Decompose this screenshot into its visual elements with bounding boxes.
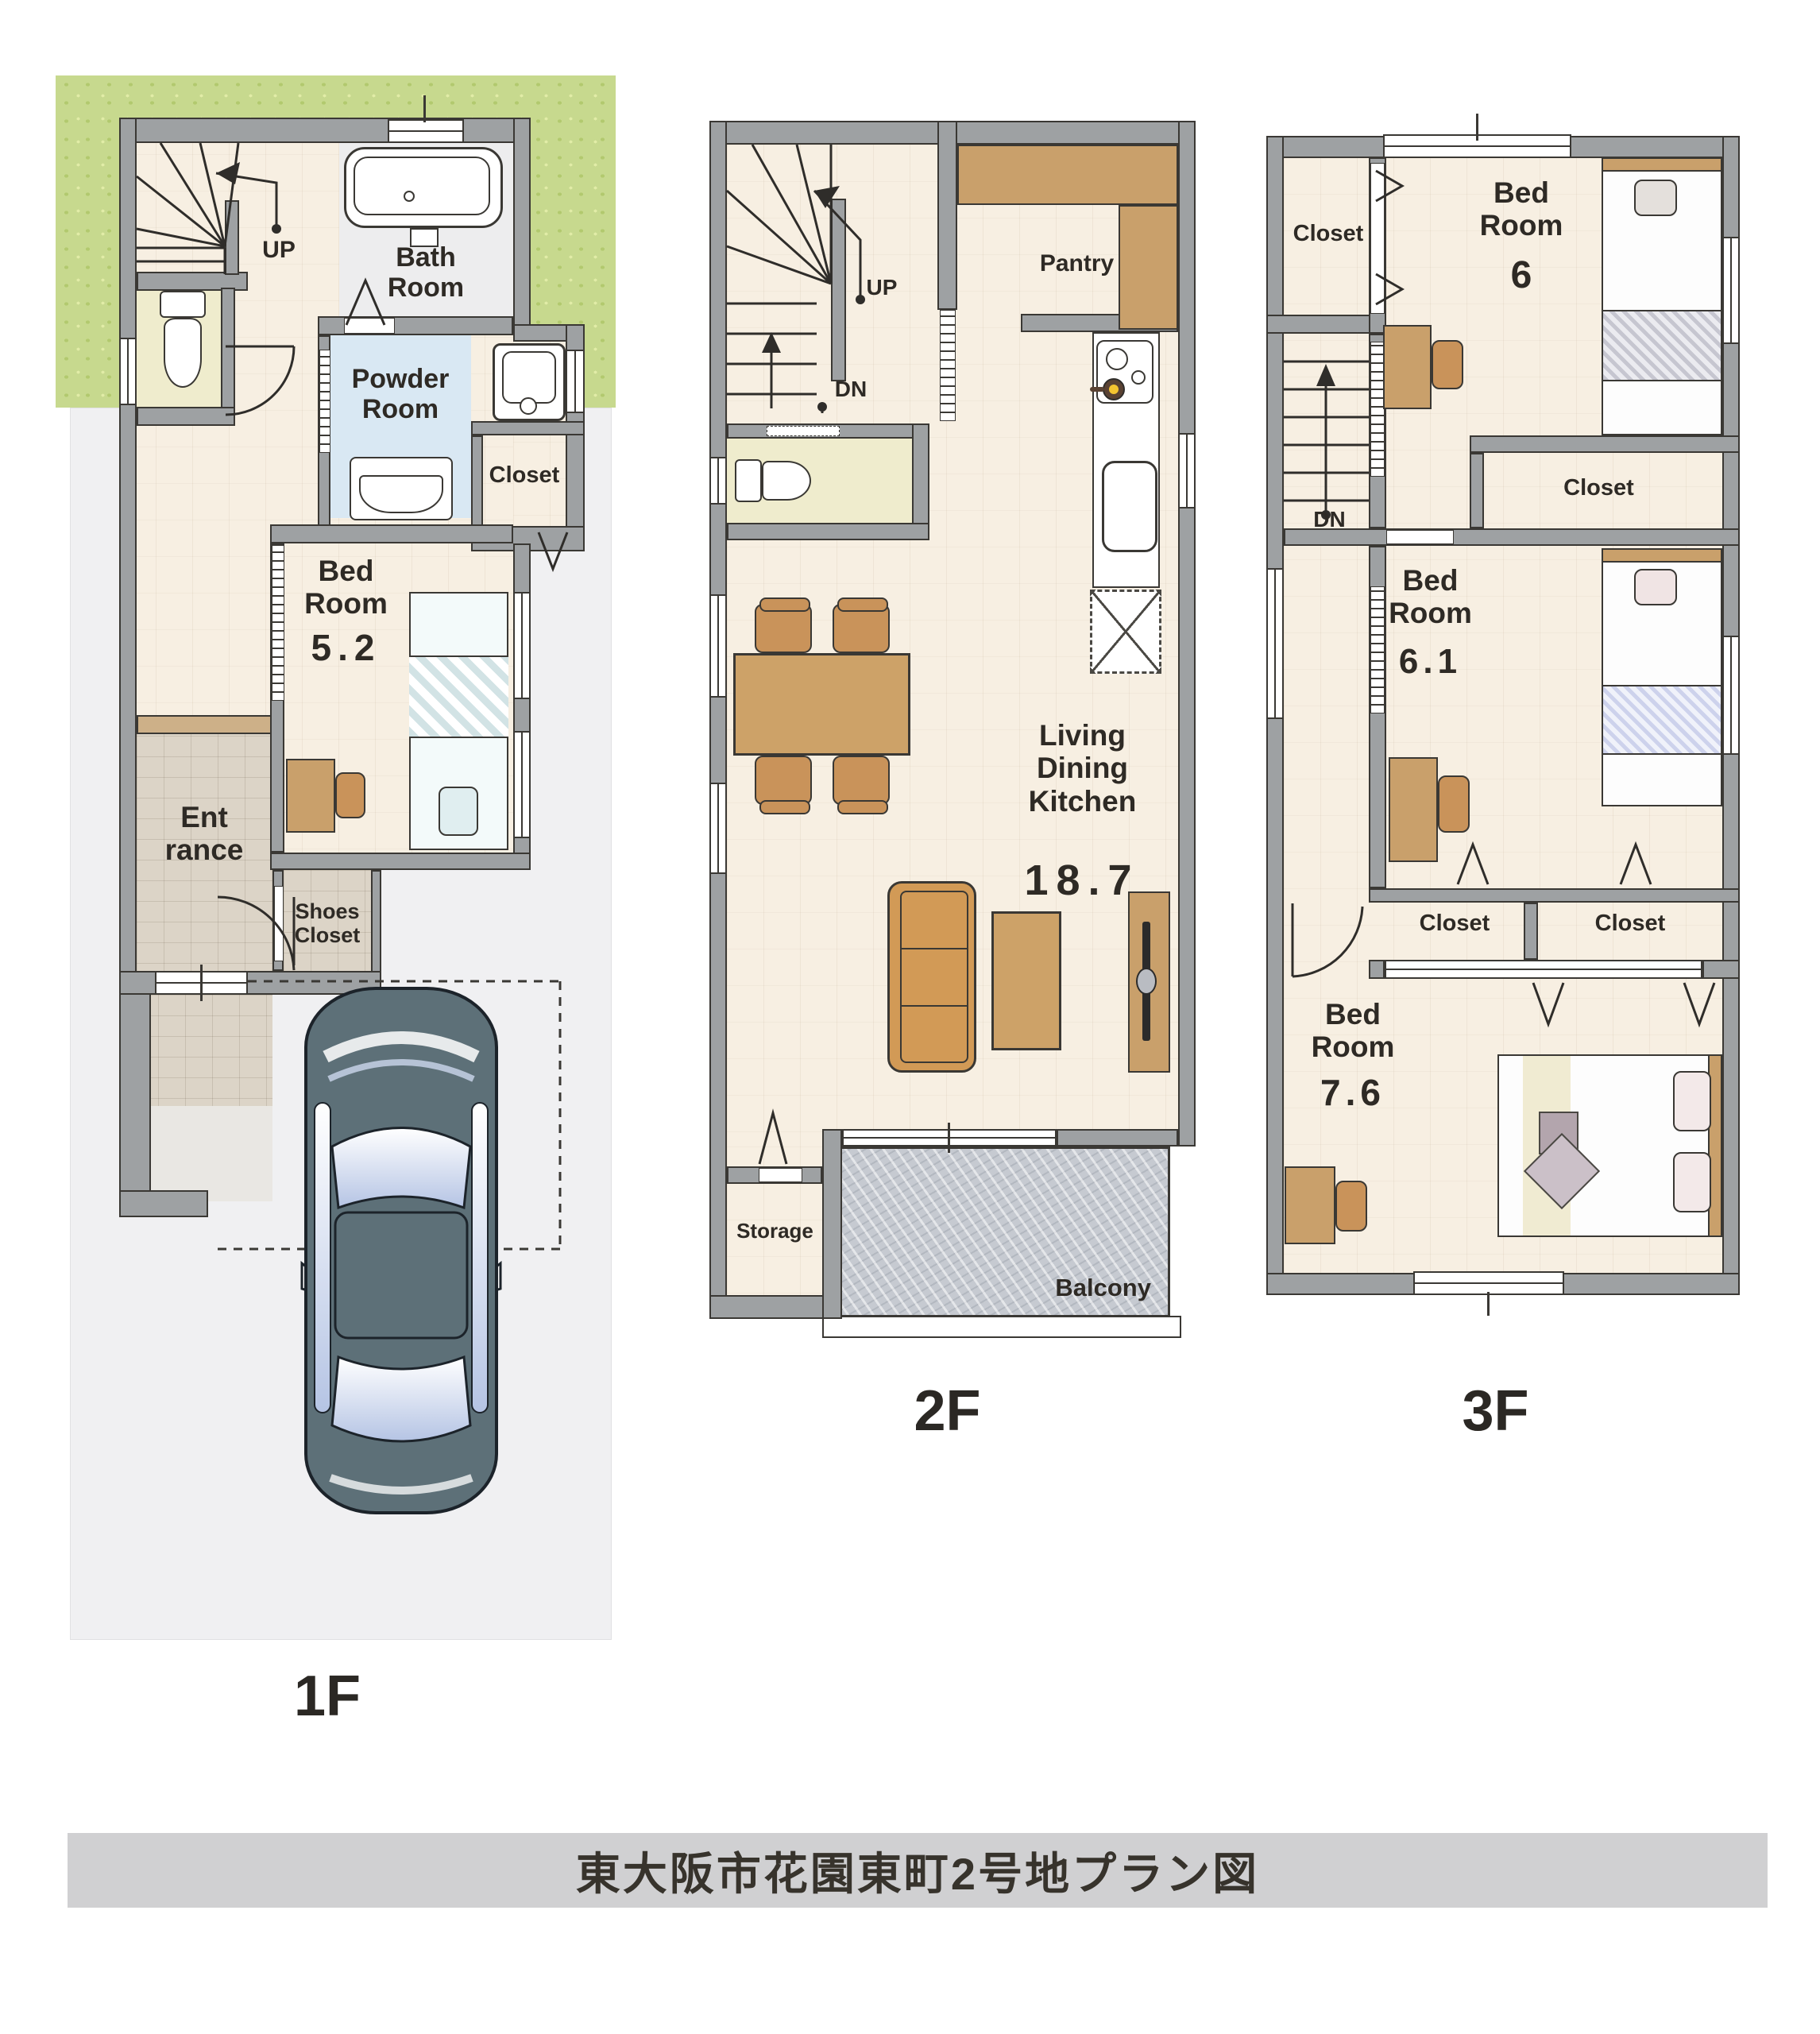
window	[1722, 237, 1740, 344]
room-label-closet-1f: Closet	[477, 462, 572, 488]
wall	[513, 118, 531, 340]
room-size-bedroom-1f: 5.2	[292, 628, 400, 669]
desk-icon	[1389, 757, 1438, 862]
room-label-ldk: Living Dining Kitchen	[1021, 719, 1144, 818]
floor-label-3f: 3F	[1454, 1379, 1537, 1444]
door-mark-closet-top	[1372, 167, 1407, 205]
bed6-pillow	[1634, 180, 1677, 216]
bathtub-inner	[354, 157, 490, 215]
kitchen-sink-icon	[1102, 461, 1157, 552]
bed76-pillow	[1673, 1071, 1711, 1131]
chair-icon	[1335, 1181, 1367, 1232]
wall	[1178, 121, 1196, 1147]
wall	[1702, 960, 1740, 979]
window	[388, 119, 464, 143]
powder-sink-basin	[359, 475, 443, 513]
bed6-blanket-hatch	[1603, 310, 1721, 381]
bed6-headboard	[1602, 157, 1722, 172]
chair-back	[759, 597, 810, 612]
room-label-bedroom61: Bed Room	[1381, 564, 1480, 630]
window-tick	[1487, 1292, 1490, 1316]
front-door-tick	[200, 965, 203, 1001]
window	[513, 731, 531, 838]
wall	[1369, 888, 1740, 903]
window	[119, 338, 137, 405]
door-gap-hall-ldk	[940, 310, 956, 421]
room-label-entrance: Ent rance	[153, 801, 256, 867]
chair-icon	[833, 756, 890, 805]
door-gap-toilet2	[767, 426, 840, 436]
wall	[1470, 435, 1740, 453]
window	[709, 783, 727, 874]
window	[1722, 636, 1740, 755]
sofa-cushion-line	[902, 1005, 967, 1007]
room-label-closet-bottom-left: Closet	[1395, 911, 1514, 936]
toilet-icon-bowl	[164, 318, 202, 388]
wall	[1470, 453, 1484, 528]
room-label-bath: Bath Room	[362, 242, 489, 303]
balcony-window-tick	[948, 1123, 950, 1153]
room-label-bedroom-1f: Bed Room	[292, 555, 400, 621]
room-label-closet-top: Closet	[1281, 221, 1376, 246]
room-size-ldk: 18.7	[1014, 857, 1150, 904]
desk-icon	[1383, 325, 1432, 409]
room-label-shoes-closet: Shoes Closet	[284, 899, 371, 947]
pantry-counter-top	[957, 145, 1178, 205]
toilet2-icon-bowl	[762, 461, 811, 501]
entrance-step-strip	[137, 715, 272, 734]
closet-row-sliding-door	[1385, 960, 1702, 979]
desk-icon	[286, 759, 335, 833]
door-mark-closet61	[1454, 841, 1492, 888]
bathtub-drain	[404, 191, 415, 202]
sofa-cushion-line	[902, 948, 967, 949]
wall	[270, 524, 513, 543]
floor-label-1f: 1F	[272, 1665, 383, 1729]
wall	[822, 1129, 842, 1319]
door-gap-storage	[759, 1168, 802, 1182]
chair-back	[837, 597, 888, 612]
door-gap-powder	[319, 350, 330, 453]
sofa-seat	[900, 891, 968, 1063]
washer-drain	[520, 397, 537, 415]
wall	[270, 853, 531, 870]
room-label-powder: Powder Room	[337, 364, 464, 424]
stove-burner-small	[1131, 370, 1146, 385]
room-label-pantry: Pantry	[1023, 250, 1130, 277]
stairs-dn-label: DN	[825, 377, 877, 404]
room-label-bedroom6: Bed Room	[1466, 176, 1577, 242]
chair-icon	[1432, 340, 1463, 389]
wall	[119, 118, 531, 143]
stairs-dn-label: DN	[1300, 507, 1359, 532]
coffee-table-icon	[991, 911, 1061, 1050]
door-gap-hall	[1386, 530, 1454, 544]
wall	[727, 523, 929, 540]
floor-label-2f: 2F	[906, 1379, 989, 1444]
window	[709, 457, 727, 505]
wall	[471, 421, 585, 435]
wall	[709, 121, 727, 1319]
chair-icon	[335, 772, 365, 818]
door-mark-closet76	[1680, 979, 1718, 1028]
room-label-closet-mid: Closet	[1549, 475, 1648, 501]
toilet-icon-tank	[160, 291, 206, 318]
window	[513, 592, 531, 699]
toilet2-icon-tank	[735, 459, 762, 502]
wall	[1057, 1129, 1178, 1147]
window-tick	[1476, 114, 1478, 141]
bed61-blanket-hatch	[1603, 685, 1721, 755]
room-label-storage: Storage	[725, 1220, 825, 1243]
wall	[937, 121, 957, 310]
room-label-bedroom76: Bed Room	[1301, 998, 1405, 1064]
door-arc-bedroom76	[1286, 900, 1366, 980]
bed76-pillow	[1673, 1152, 1711, 1212]
wall	[119, 118, 137, 995]
door-mark-closet1f	[534, 528, 572, 574]
door-mark-closet61	[1617, 841, 1655, 888]
desk-icon	[1285, 1166, 1335, 1244]
room-size-bedroom61: 6.1	[1381, 642, 1480, 681]
room-size-bedroom76: 7.6	[1301, 1073, 1405, 1114]
wall-garage-l	[119, 993, 151, 1217]
balcony-railing	[822, 1316, 1181, 1338]
stove-burner-large	[1106, 348, 1128, 370]
plan-title: 東大阪市花園東町2号地プラン図	[576, 1839, 1259, 1903]
bed-blanket-hatch	[409, 655, 508, 738]
floor-plan-sheet: UP Bath Room Powder Room Closet Bed Room…	[0, 0, 1820, 2034]
bed61-headboard	[1602, 548, 1722, 563]
stairs-up-label: UP	[856, 275, 907, 302]
door-arc-toilet	[222, 342, 298, 417]
door-mark-closet76	[1529, 979, 1567, 1028]
window-tick	[423, 95, 426, 122]
stairs-up-label: UP	[251, 237, 307, 265]
washer-pan-inner	[502, 351, 556, 404]
wall	[1524, 903, 1538, 960]
wall	[1369, 960, 1385, 979]
window	[566, 350, 585, 413]
car-icon	[284, 984, 518, 1518]
room-size-bedroom6: 6	[1466, 254, 1577, 297]
chair-icon	[1438, 775, 1470, 833]
room-label-balcony: Balcony	[993, 1274, 1156, 1302]
door-mark-closet-top	[1372, 270, 1407, 308]
stairs-icon-floor3	[1284, 334, 1369, 528]
bed61-pillow	[1634, 569, 1677, 605]
door-gap-bedroom	[272, 545, 284, 701]
window	[1266, 568, 1284, 719]
wall-garage-l	[119, 1190, 208, 1217]
tv-lens	[1136, 968, 1157, 995]
window	[709, 594, 727, 698]
frying-pan-handle	[1090, 387, 1104, 392]
dining-table-icon	[733, 653, 910, 756]
title-bar: 東大阪市花園東町2号地プラン図	[68, 1833, 1768, 1908]
chair-icon	[755, 756, 812, 805]
door-mark-storage	[753, 1108, 793, 1168]
refrigerator-space	[1090, 590, 1161, 674]
bed-pillow	[439, 787, 478, 836]
window	[1178, 433, 1196, 508]
wall	[137, 407, 235, 426]
room-label-closet-bottom-right: Closet	[1571, 911, 1690, 936]
chair-back	[759, 800, 810, 814]
frying-pan-egg	[1109, 385, 1119, 394]
chair-back	[837, 800, 888, 814]
